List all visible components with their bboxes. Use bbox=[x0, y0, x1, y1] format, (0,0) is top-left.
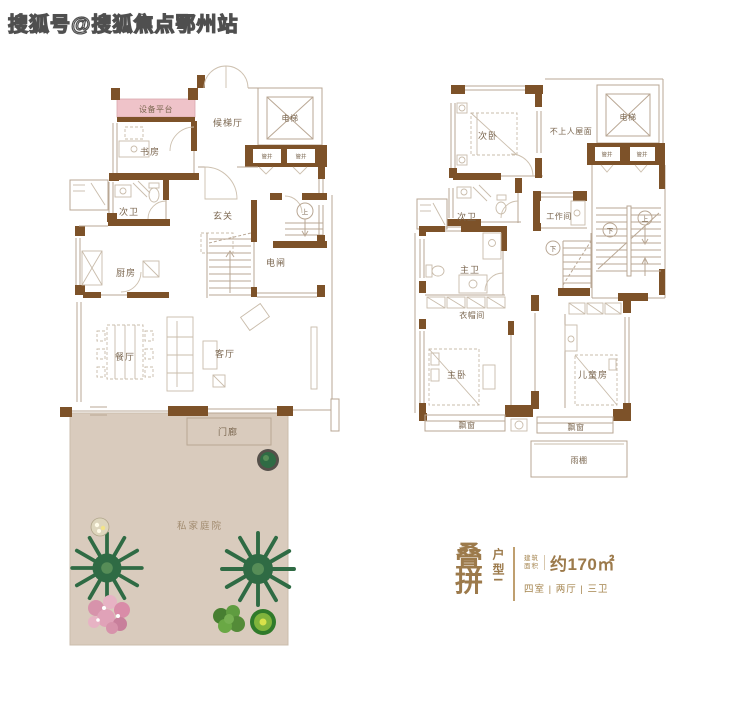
watermark: 搜狐号@搜狐焦点鄂州站 bbox=[8, 8, 239, 37]
bath-fixtures bbox=[115, 181, 159, 202]
floor-plan-lower: 设备平台 书房 候梯厅 电梯 管井 管井 bbox=[55, 55, 355, 660]
label-bay-window: 飘窗 bbox=[568, 422, 585, 432]
info-divider bbox=[513, 547, 515, 601]
room-label-living: 客厅 bbox=[215, 348, 235, 359]
room-label-courtyard: 私家庭院 bbox=[177, 520, 223, 532]
private-stair-treads bbox=[563, 233, 591, 288]
floorplan-page: 搜狐号@搜狐焦点鄂州站 bbox=[0, 0, 740, 720]
room-label-closet: 衣帽间 bbox=[459, 310, 485, 320]
unit-type-name: 叠 拼 bbox=[455, 544, 483, 594]
room-label-bath2: 次卫 bbox=[457, 211, 477, 222]
unit-type-char: 拼 bbox=[455, 569, 483, 594]
room-label-elevator: 电梯 bbox=[282, 113, 299, 123]
room-label-kids-room: 儿童房 bbox=[578, 369, 608, 380]
room-label-bath2: 次卫 bbox=[119, 206, 139, 217]
floor-plan-upper: 次卧 不上人屋面 电梯 管井 管井 下 bbox=[413, 73, 735, 485]
kids-closet-hatch bbox=[569, 303, 621, 314]
flower-pot bbox=[91, 518, 109, 536]
kids-bed bbox=[565, 325, 617, 405]
living-sofa bbox=[167, 317, 317, 391]
room-label-elevator: 电梯 bbox=[620, 112, 637, 122]
label-pipe-shaft: 管井 bbox=[295, 153, 307, 161]
unit-entry-door-arc bbox=[205, 167, 237, 199]
unit-type-label: 户型I bbox=[490, 548, 507, 604]
entry-door-arc bbox=[226, 66, 248, 88]
stairs-down-inner-label: 下 bbox=[550, 245, 557, 253]
room-label-equipment-platform: 设备平台 bbox=[139, 104, 173, 114]
workroom-desk bbox=[571, 201, 585, 225]
label-bay-window: 飘窗 bbox=[459, 420, 476, 430]
area-separator bbox=[544, 555, 545, 570]
stairs-up-label: 上 bbox=[302, 207, 309, 216]
entry-door-arc bbox=[204, 66, 226, 88]
ac-unit bbox=[511, 419, 527, 431]
area-value: 约170㎡ bbox=[550, 550, 615, 575]
stairs-up-label: 上 bbox=[642, 214, 649, 223]
area-caption: 建筑 面积 bbox=[524, 555, 539, 570]
label-pipe-shaft: 管井 bbox=[261, 153, 273, 161]
room-label-workroom: 工作间 bbox=[546, 211, 572, 221]
room-label-switch-room: 电闸 bbox=[266, 257, 286, 268]
label-pipe-shaft: 管井 bbox=[601, 151, 613, 159]
master-bath-fixtures bbox=[426, 233, 501, 293]
planter-pot bbox=[257, 449, 279, 471]
bath2-fixtures bbox=[457, 185, 506, 214]
room-label-porch: 门廊 bbox=[218, 426, 238, 437]
shoe-cabinet bbox=[201, 233, 233, 253]
room-label-canopy: 雨棚 bbox=[571, 455, 588, 465]
ac-platform bbox=[70, 180, 108, 210]
closet-hatch bbox=[427, 297, 505, 308]
room-label-roof: 不上人屋面 bbox=[550, 127, 593, 136]
study-door-arc bbox=[170, 127, 194, 151]
room-label-master-bedroom: 主卧 bbox=[447, 369, 467, 380]
ac-platform bbox=[417, 199, 447, 229]
room-label-master-bath: 主卫 bbox=[460, 264, 480, 275]
armchair bbox=[241, 304, 270, 331]
room-label-study: 书房 bbox=[140, 146, 160, 157]
round-bush bbox=[250, 609, 276, 635]
room-label-foyer: 玄关 bbox=[213, 210, 233, 221]
stairs-down-label: 下 bbox=[607, 227, 614, 235]
label-pipe-shaft: 管井 bbox=[636, 151, 648, 159]
room-label-kitchen: 厨房 bbox=[116, 267, 136, 278]
rooms-summary: 四室 | 两厅 | 三卫 bbox=[524, 581, 615, 595]
stair-treads bbox=[285, 223, 323, 235]
room-label-dining: 餐厅 bbox=[115, 351, 135, 362]
boundary-stub bbox=[331, 399, 339, 431]
room-label-bedroom2: 次卧 bbox=[478, 130, 498, 141]
room-label-elevator-lobby: 候梯厅 bbox=[213, 117, 243, 128]
internal-stair bbox=[207, 233, 251, 298]
unit-info-block: 叠 拼 户型I 建筑 面积 约170㎡ 四室 | 两厅 | 三卫 bbox=[450, 538, 660, 610]
